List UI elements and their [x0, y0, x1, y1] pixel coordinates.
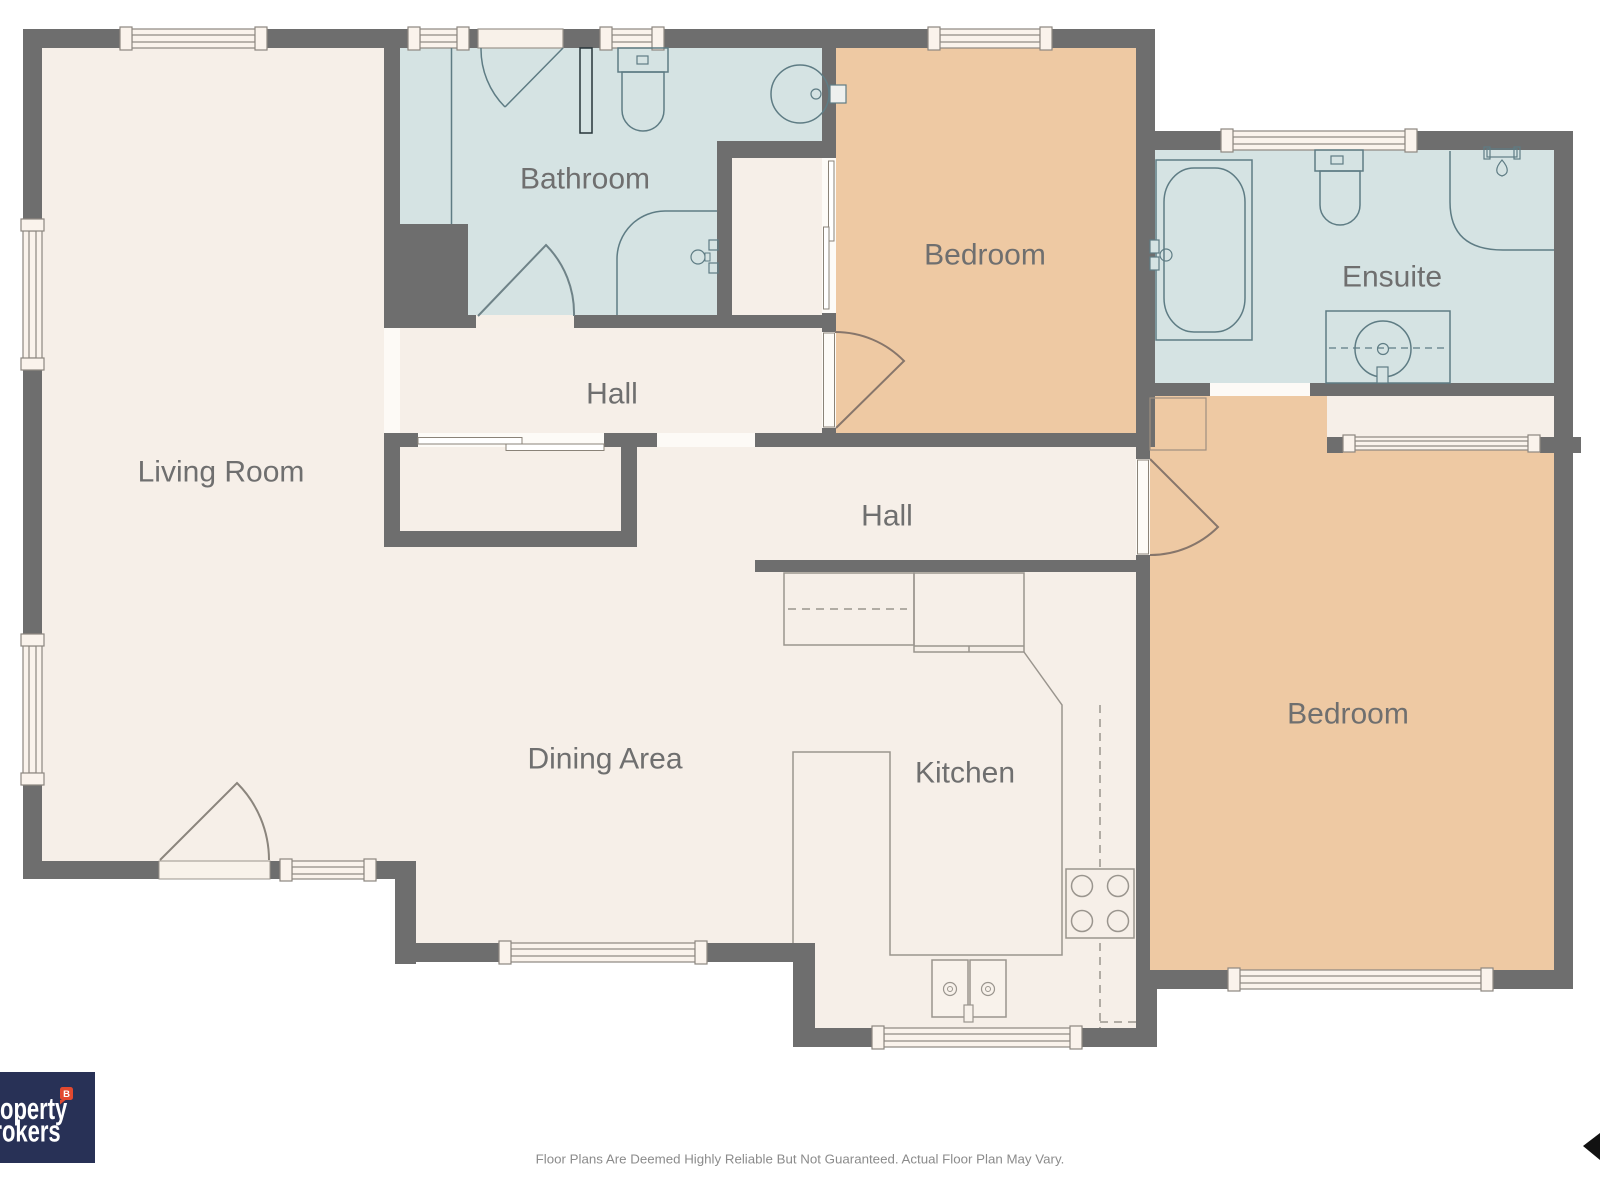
svg-text:Ensuite: Ensuite: [1342, 261, 1442, 294]
svg-text:Bedroom: Bedroom: [1287, 698, 1409, 731]
svg-text:Hall: Hall: [586, 378, 638, 411]
svg-text:Living Room: Living Room: [138, 456, 305, 489]
svg-text:Hall: Hall: [861, 500, 913, 533]
svg-text:Brokers: Brokers: [0, 1114, 61, 1149]
svg-text:Bedroom: Bedroom: [924, 239, 1046, 272]
svg-text:B: B: [63, 1089, 70, 1100]
svg-text:Floor Plans Are Deemed Highly: Floor Plans Are Deemed Highly Reliable B…: [536, 1152, 1065, 1167]
svg-text:Dining Area: Dining Area: [527, 743, 682, 776]
svg-text:Kitchen: Kitchen: [915, 757, 1015, 790]
svg-text:Bathroom: Bathroom: [520, 163, 650, 196]
